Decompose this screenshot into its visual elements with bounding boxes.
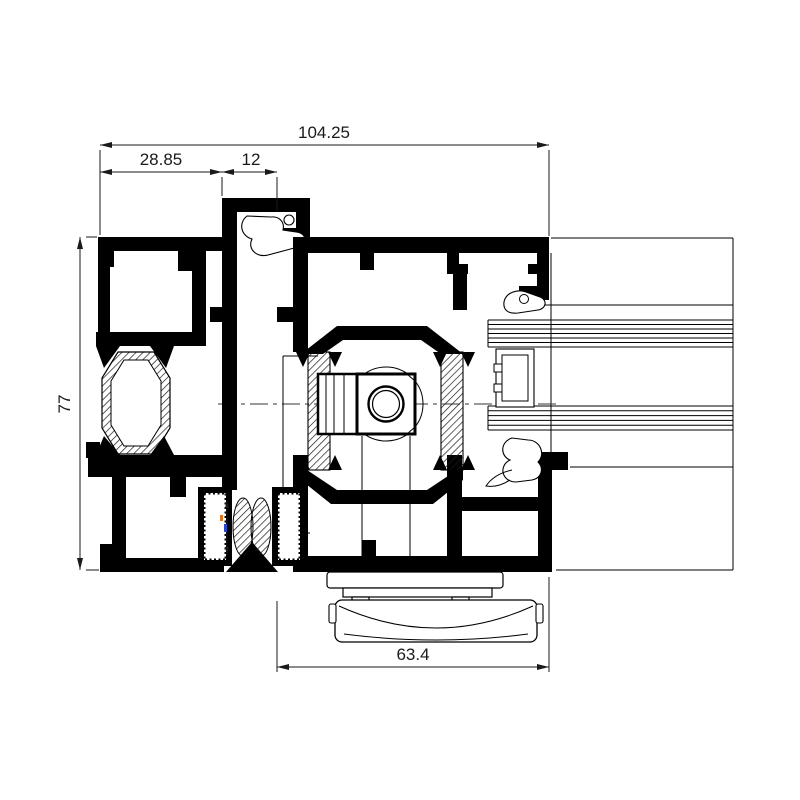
dim-overlap-label: 12 (242, 150, 261, 169)
lock-cylinder (369, 387, 404, 422)
technical-drawing: 104.25 28.85 12 77 63.4 (0, 0, 800, 800)
drawing-canvas: 104.25 28.85 12 77 63.4 (0, 0, 800, 800)
dim-overall-height-label: 77 (55, 395, 74, 414)
dim-frame-left-section: 28.85 (100, 150, 222, 196)
dim-overall-width: 104.25 (100, 123, 549, 236)
handle-grip (335, 600, 537, 642)
dim-overall-width-label: 104.25 (298, 123, 350, 142)
door-handle (327, 572, 543, 642)
dim-sash-width-label: 63.4 (396, 645, 429, 664)
threshold-interlock-bump (226, 542, 278, 572)
lock-mechanism (318, 367, 423, 441)
glass-pane-bottom (488, 406, 733, 430)
glazing-spacer (494, 349, 534, 407)
dim-frame-left-section-label: 28.85 (140, 150, 183, 169)
dim-overall-height: 77 (55, 237, 99, 570)
thermal-break-left (96, 346, 174, 455)
gasket-glazing-lower (486, 438, 542, 486)
glass-pane-top (488, 320, 733, 347)
